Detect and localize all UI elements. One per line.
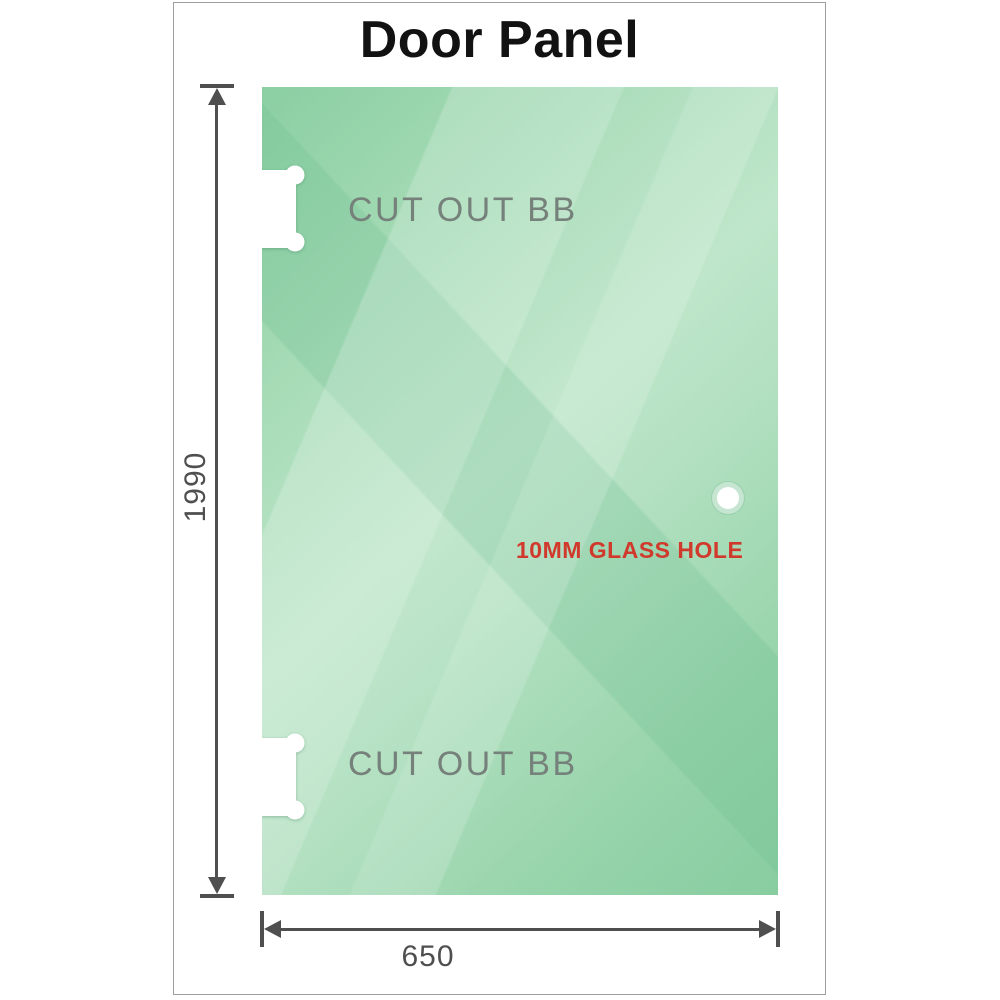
cutout-label-bottom: CUT OUT BB bbox=[348, 745, 578, 784]
glass-hole bbox=[717, 487, 739, 509]
hinge-cutout-top-shape bbox=[262, 163, 311, 263]
glass-hole-label: 10MM GLASS HOLE bbox=[516, 537, 743, 564]
arrow-right-icon bbox=[759, 920, 776, 938]
cutout-label-top: CUT OUT BB bbox=[348, 191, 578, 230]
width-dim-line bbox=[272, 928, 768, 931]
glass-panel: CUT OUT BB CUT OUT BB 10MM GLASS HOLE bbox=[262, 87, 778, 895]
diagram-canvas: Door Panel bbox=[0, 0, 1000, 1000]
width-dim-cap-right bbox=[776, 911, 780, 947]
arrow-down-icon bbox=[208, 877, 226, 894]
height-dim-cap-bottom bbox=[200, 894, 234, 898]
width-dimension-value: 650 bbox=[378, 940, 478, 974]
page-title: Door Panel bbox=[173, 10, 826, 70]
height-dimension-value: 1990 bbox=[179, 427, 209, 547]
hinge-cutout-bottom-shape bbox=[262, 731, 311, 831]
height-dim-line bbox=[215, 96, 218, 887]
